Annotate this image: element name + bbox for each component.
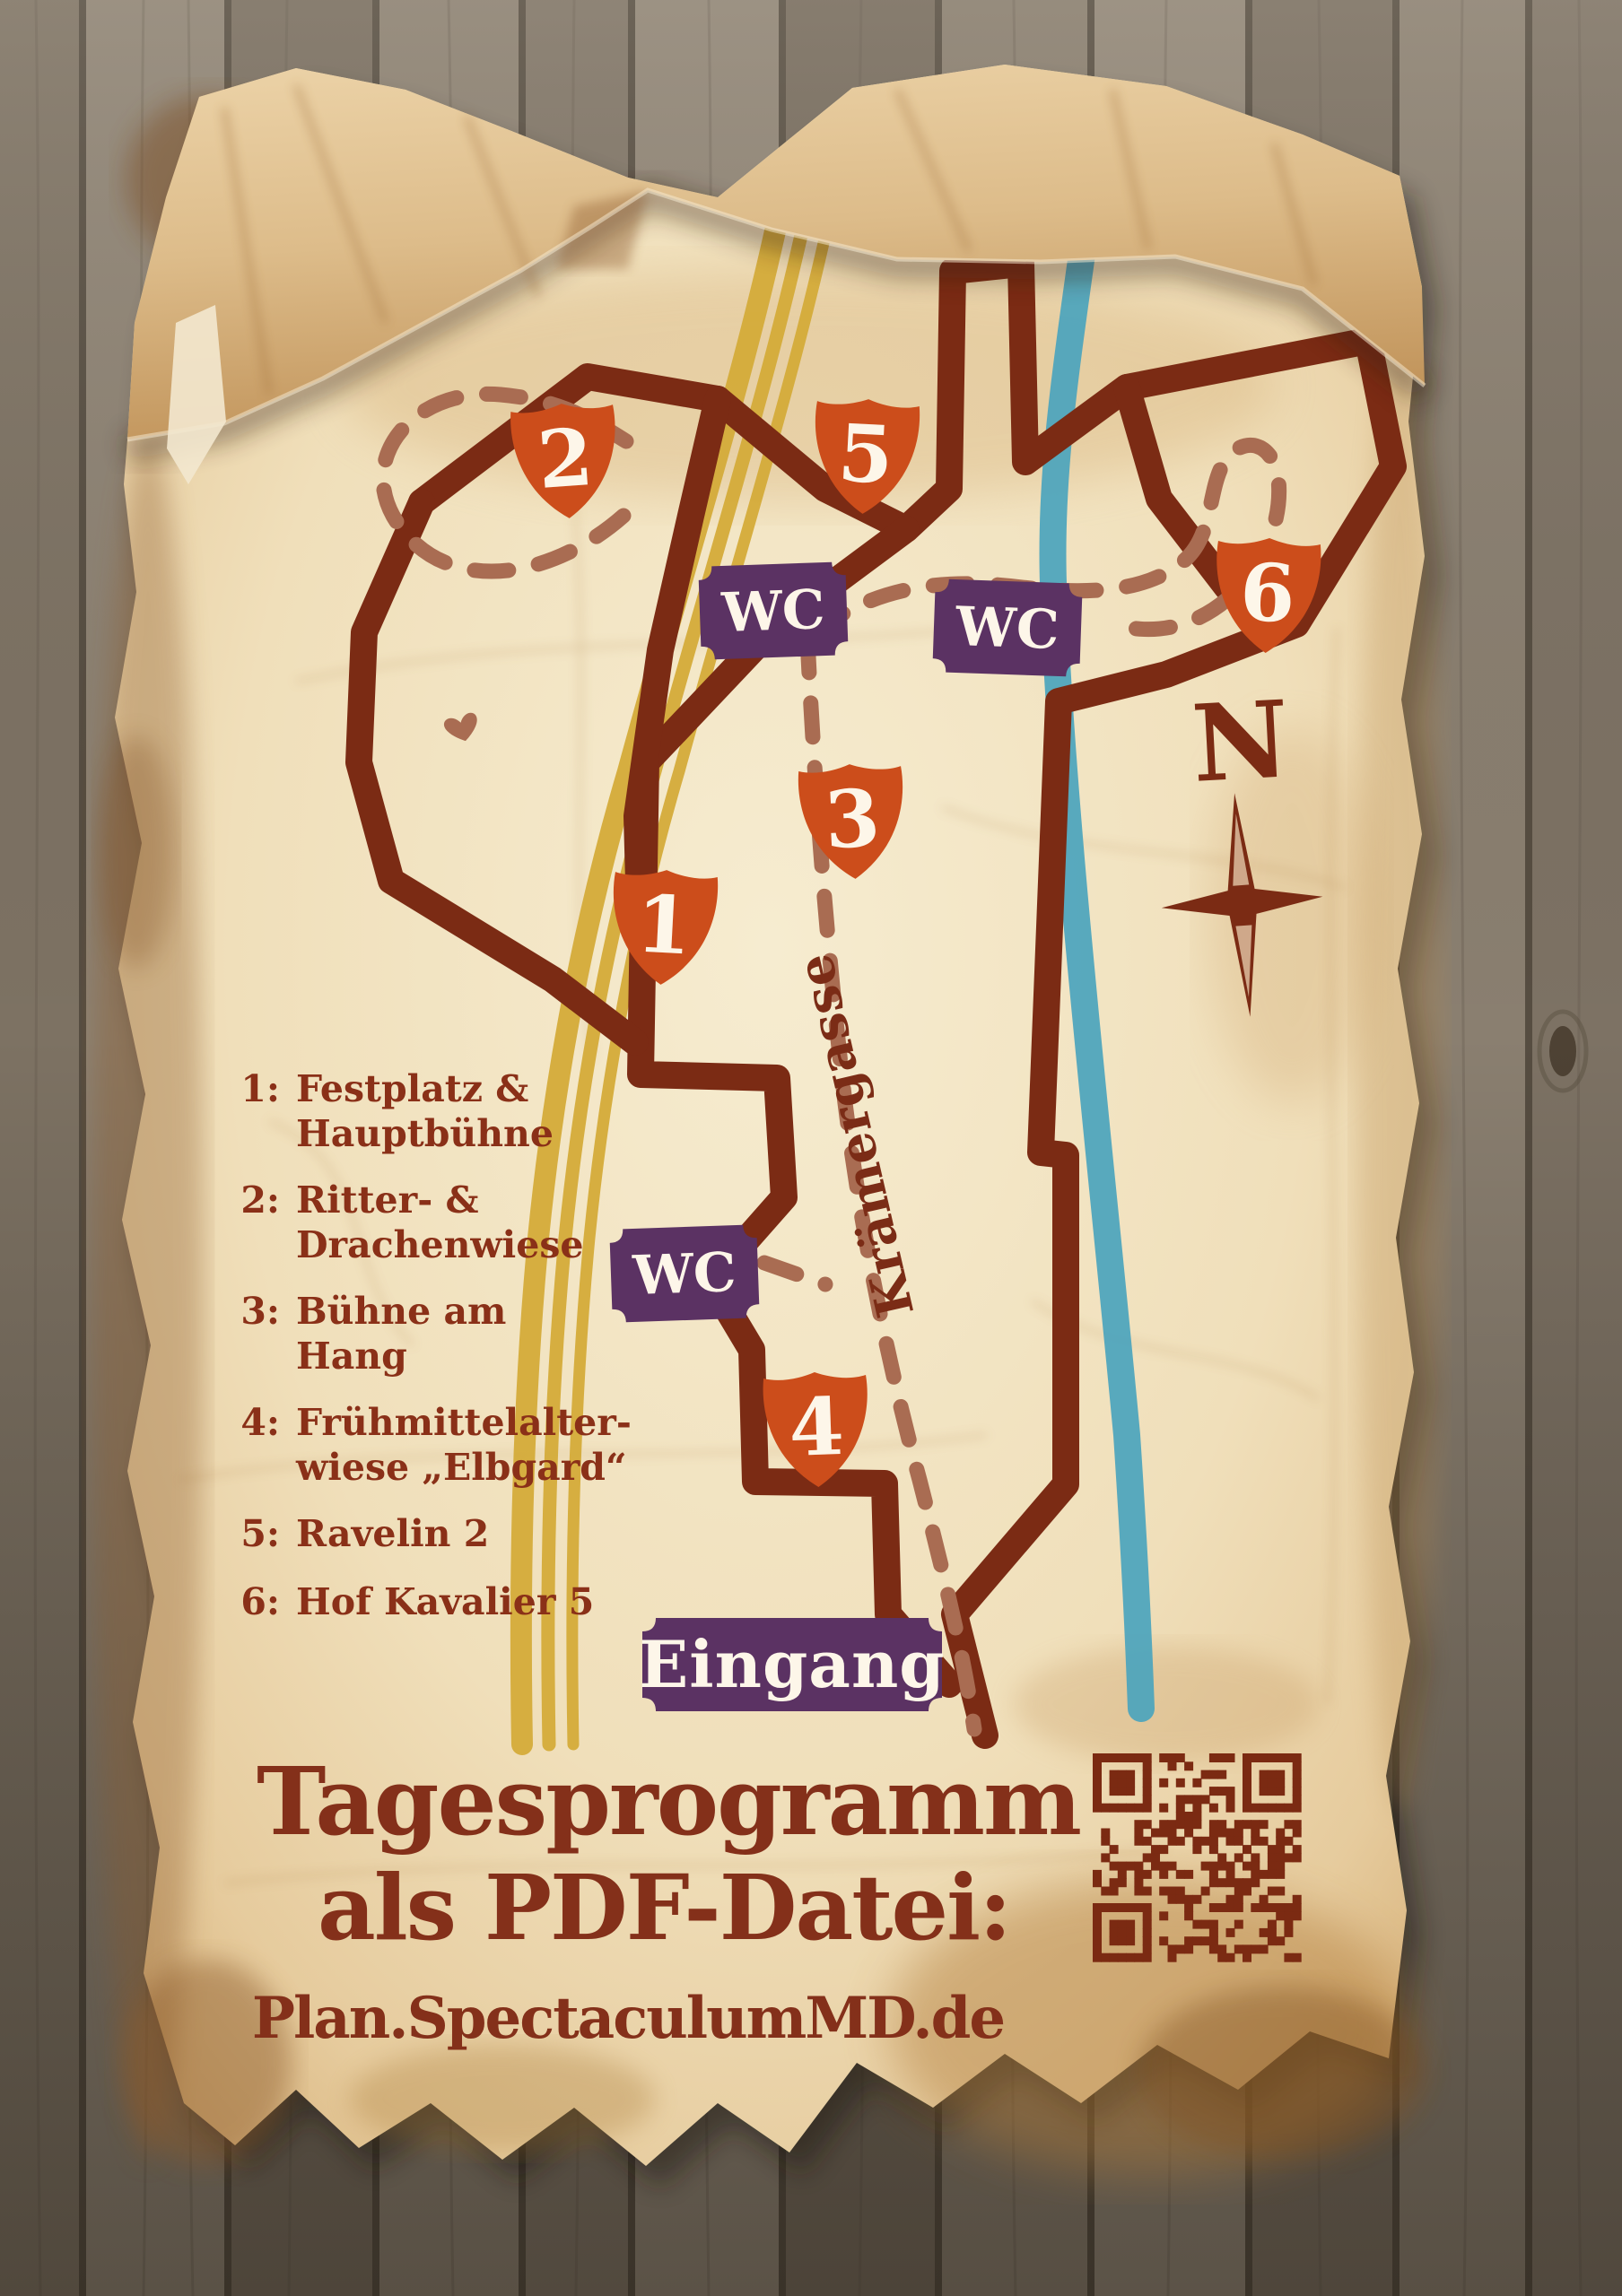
poster-canvas: Krämergasse N 1 2 3 4 xyxy=(0,0,1622,2296)
shield-1-number: 1 xyxy=(634,876,694,972)
legend-4-line1: Frühmittelalter- xyxy=(296,1401,632,1444)
wc-plaque-left: WC xyxy=(698,561,849,660)
legend-2-line1: Ritter- & xyxy=(296,1178,479,1222)
footer-title-line2: als PDF-Datei: xyxy=(318,1855,1010,1961)
legend-4-num: 4: xyxy=(240,1401,280,1444)
festival-map-poster: Krämergasse N 1 2 3 4 xyxy=(0,0,1622,2296)
legend-5-line1: Ravelin 2 xyxy=(296,1512,489,1555)
legend-3-line2: Hang xyxy=(296,1335,407,1378)
legend-1-line2: Hauptbühne xyxy=(296,1112,554,1155)
legend-1-num: 1: xyxy=(240,1067,280,1110)
shield-3-number: 3 xyxy=(823,770,883,866)
compass-n-label: N xyxy=(1189,676,1292,805)
legend-6-line1: Hof Kavalier 5 xyxy=(296,1580,594,1623)
shield-2-number: 2 xyxy=(535,410,596,507)
shield-6-number: 6 xyxy=(1239,545,1297,640)
wc-bottom-label: WC xyxy=(631,1241,737,1308)
wc-plaque-right: WC xyxy=(932,578,1083,677)
footer-url: Plan.SpectaculumMD.de xyxy=(252,1985,1004,2052)
legend-3-line1: Bühne am xyxy=(296,1290,506,1333)
wc-right-label: WC xyxy=(954,596,1060,662)
legend-4-line2: wiese „Elbgard“ xyxy=(295,1446,627,1489)
shield-4-number: 4 xyxy=(788,1379,846,1474)
legend-3-num: 3: xyxy=(240,1290,280,1333)
entrance-label: Eingang xyxy=(639,1626,945,1702)
wc-left-label: WC xyxy=(719,578,826,645)
wc-plaque-bottom: WC xyxy=(609,1224,760,1323)
legend-2-line2: Drachenwiese xyxy=(296,1223,584,1266)
footer-title-line1: Tagesprogramm xyxy=(257,1746,1080,1857)
shield-5-number: 5 xyxy=(836,405,896,501)
legend-5-num: 5: xyxy=(240,1512,280,1555)
entrance-plaque: Eingang xyxy=(639,1618,945,1711)
legend-6-num: 6: xyxy=(240,1580,280,1623)
legend-1-line1: Festplatz & xyxy=(296,1067,528,1110)
legend-2-num: 2: xyxy=(240,1178,280,1222)
